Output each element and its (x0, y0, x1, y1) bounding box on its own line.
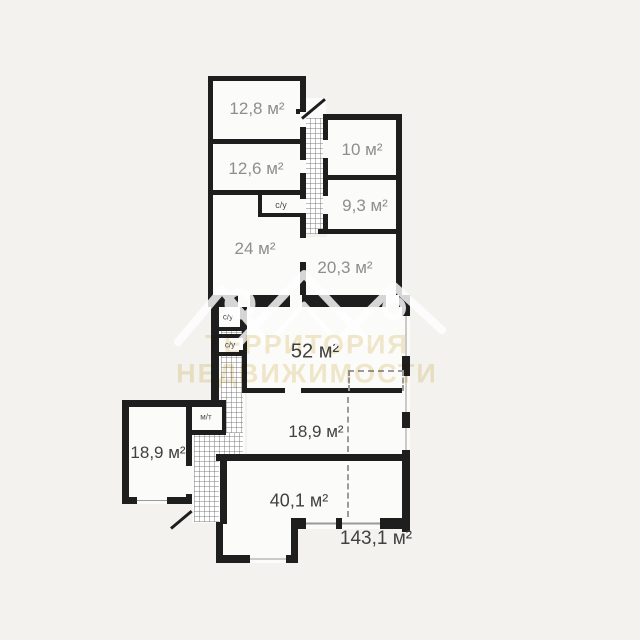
vestibule (220, 522, 295, 558)
door-opening (323, 140, 328, 158)
door-opening (186, 466, 192, 494)
corridor-hatch (194, 457, 219, 522)
room-label-bathroom-top: с/у (275, 200, 287, 210)
wall (208, 76, 306, 81)
room-label-40-1: 40,1 м² (270, 491, 328, 512)
wall (216, 454, 404, 461)
partition-dashed-line (347, 465, 349, 517)
door-opening (323, 196, 328, 214)
door-opening (300, 238, 306, 262)
corridor-hatch (305, 118, 324, 234)
wall (210, 190, 302, 195)
window (306, 518, 336, 529)
room-label-24: 24 м² (235, 239, 276, 259)
wall (122, 400, 226, 407)
corridor-hatch (226, 403, 243, 433)
wall (210, 139, 302, 144)
wall (258, 213, 302, 217)
door-opening (300, 199, 306, 213)
total-area-label: 143,1 м² (340, 528, 412, 550)
wall (318, 229, 396, 234)
partition-dashed-line (347, 397, 349, 452)
wall (323, 114, 328, 234)
wall (327, 175, 396, 180)
door-swing (170, 510, 193, 530)
door-opening (300, 160, 306, 173)
room-label-utility: м/т (200, 413, 211, 422)
window (250, 555, 286, 563)
floor-plan: 12,8 м² 12,6 м² с/у 24 м² 10 м² 9,3 м² 2… (0, 0, 640, 640)
window (402, 428, 410, 450)
wall (122, 400, 129, 504)
room-label-18-9-left: 18,9 м² (130, 443, 185, 463)
room-label-18-9-right: 18,9 м² (288, 422, 343, 442)
wall (188, 430, 226, 435)
room-label-12-8: 12,8 м² (229, 99, 284, 119)
watermark-text-line1: ТЕРРИТОРИЯ (205, 330, 409, 361)
room-label-12-6: 12,6 м² (228, 159, 283, 179)
watermark-text-line2: НЕДВИЖИМОСТИ (176, 359, 438, 390)
wall (325, 114, 402, 120)
wall (220, 454, 227, 524)
wall (222, 405, 226, 432)
room-label-10: 10 м² (342, 140, 383, 160)
window (137, 497, 167, 504)
room-label-9-3: 9,3 м² (342, 196, 388, 216)
